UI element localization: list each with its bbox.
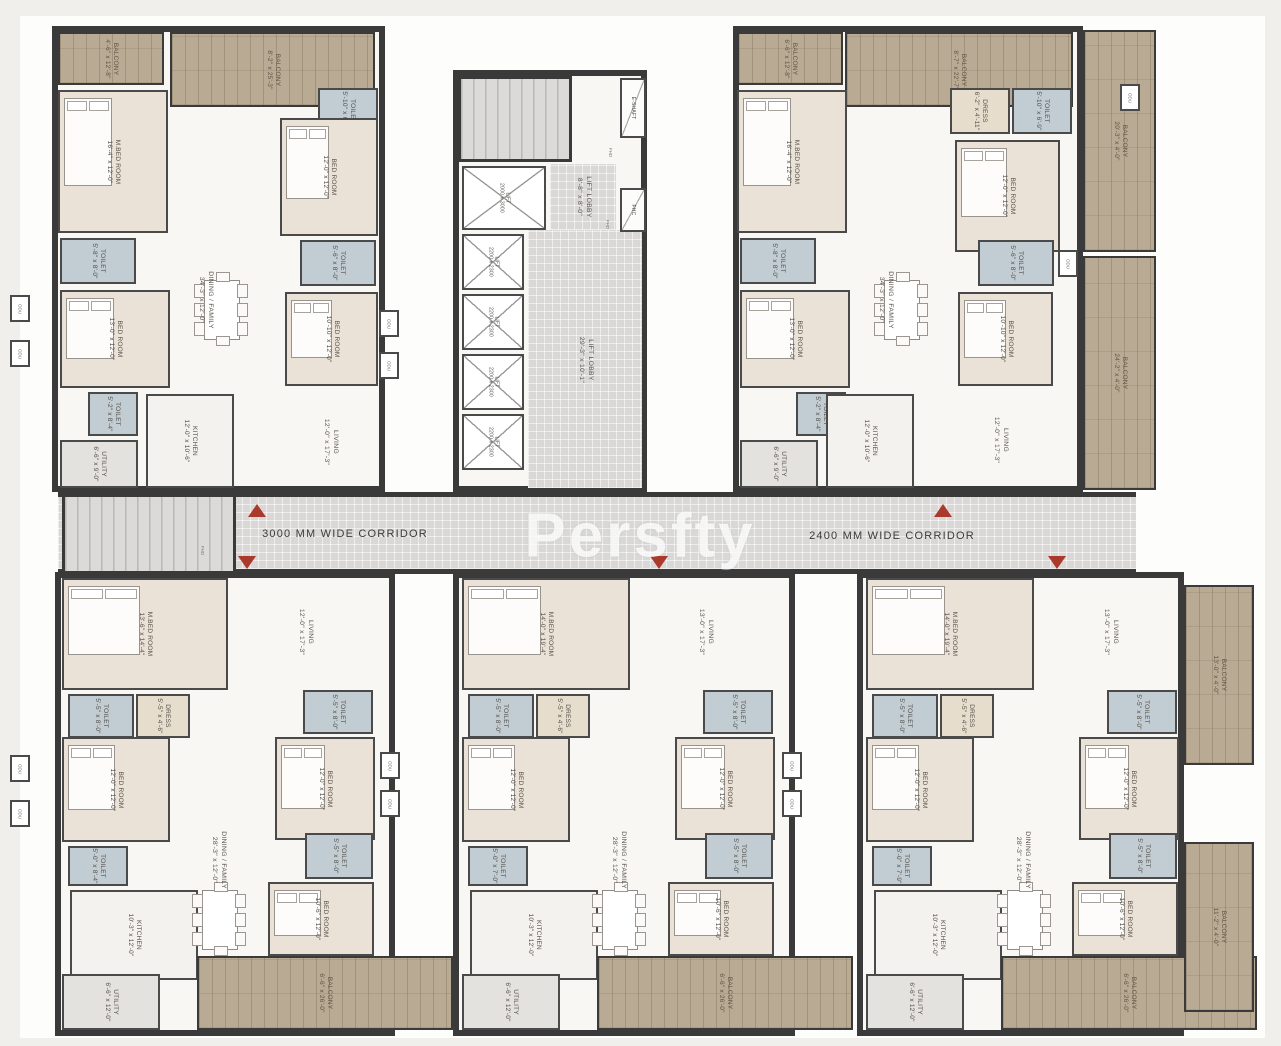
room-dim: 10'-3" x 12'-0" <box>930 914 938 957</box>
room-name: DINING / FAMILY <box>885 271 894 329</box>
room-name: UTILITY <box>511 982 519 1021</box>
room-dim: 5'-6" x 8'-0" <box>1008 245 1016 280</box>
room-label: M.BED ROOM13'-6" x 14'-4" <box>137 612 153 657</box>
room-bed-room: BED ROOM10'-6" x 12'-0" <box>668 882 774 956</box>
room-label: FHC <box>630 205 636 216</box>
room-dress: DRESS6'-2" x 4'-11" <box>950 88 1010 134</box>
room-dim: 34'-3" x 12'-0" <box>876 271 885 329</box>
room-toilet: TOILET5'-6" x 8'-0" <box>300 240 376 286</box>
room-dim: 8'-2" x 25'-3" <box>264 50 272 89</box>
room-toilet: TOILET5'-0" x 7'-9" <box>872 846 932 886</box>
room-dim: 2200 x 2300 <box>487 367 493 397</box>
room-m-bed-room: M.BED ROOM14'-0" x 19'-4" <box>462 578 630 690</box>
room-name: TOILET <box>778 243 786 278</box>
room-dim: 6'-6" x 26'-0" <box>1121 973 1129 1012</box>
room-label: UTILITY6'-6" x 12'-0" <box>503 982 519 1021</box>
odu-label: ODU <box>387 319 392 329</box>
room-label: E-SHAFT <box>630 97 636 120</box>
room-label: BALCONY4'-6" x 12'-8" <box>103 39 119 78</box>
room-dim: 10'-3" x 12'-0" <box>126 914 134 957</box>
room-dim: 13'-6" x 14'-4" <box>137 612 145 657</box>
room-name: BALCONY <box>725 973 733 1012</box>
room-name: M.BED ROOM <box>546 612 554 657</box>
room-label: TOILET5'-6" x 8'-0" <box>1008 245 1024 280</box>
room-lift: LIFT2200 x 2300 <box>462 354 524 410</box>
room-label: DRESS6'-2" x 4'-11" <box>972 92 988 131</box>
room-label: BED ROOM13'-0" x 12'-0" <box>787 318 803 361</box>
entry-marker-up <box>934 504 952 517</box>
room-toilet: TOILET5'-8" x 8'-0" <box>740 238 816 284</box>
room-name: BALCONY <box>790 39 798 78</box>
room-dim: 2200 x 2300 <box>487 307 493 337</box>
odu-label: ODU <box>18 764 23 774</box>
room-toilet: TOILET5'-5" x 8'-0" <box>1109 833 1177 879</box>
room-balcony: BALCONY4'-6" x 12'-8" <box>58 32 164 85</box>
room-label: KITCHEN12'-0" x 10'-6" <box>862 420 878 463</box>
room-dim: 2200 x 2300 <box>487 427 493 457</box>
entry-marker-up <box>248 504 266 517</box>
room-utility: UTILITY6'-6" x 9'-0" <box>60 440 138 488</box>
room-name: M.BED ROOM <box>792 139 800 184</box>
room-dim: 13'-0" x 4'-0" <box>1211 655 1219 694</box>
room-dim: 5'-8" x 8'-0" <box>90 243 98 278</box>
room-dim: 10'-6" x 12'-0" <box>313 898 321 941</box>
room-dim: 5'-5" x 8'-0" <box>1134 694 1142 729</box>
room-label: BALCONY6'-6" x 26'-0" <box>317 973 333 1012</box>
room-dim: 6'-6" x 9'-0" <box>771 446 779 481</box>
room-dim: 12'-0" x 12'-0" <box>108 768 116 811</box>
room-name: DINING / FAMILY <box>218 831 227 889</box>
room-name: FHC <box>630 205 636 216</box>
room-name: LIVING <box>330 419 339 465</box>
room-dim: 6'-6" x 12'-0" <box>503 982 511 1021</box>
room-bed-room: BED ROOM10'-10" x 12'-0" <box>285 292 378 386</box>
room-dim: 12'-0" x 17'-3" <box>991 417 1000 463</box>
room-label: BALCONY13'-0" x 4'-0" <box>1211 655 1227 694</box>
fhd-label: FHD <box>608 148 613 157</box>
room-bed-room: BED ROOM12'-0" x 12'-0" <box>280 118 378 236</box>
odu-label: ODU <box>387 361 392 371</box>
room-dim: 5'-10" x 6'-9" <box>1034 91 1042 130</box>
room-name: UTILITY <box>779 446 787 481</box>
room-dim: 5'-5" x 8'-0" <box>1135 838 1143 873</box>
room-label: TOILET5'-0" x 7'-9" <box>894 848 910 883</box>
room-label: BED ROOM10'-10" x 12'-0" <box>997 316 1013 363</box>
odu-box: ODU <box>379 310 399 337</box>
room-dim: 13'-0" x 12'-0" <box>107 318 115 361</box>
room-name: BALCONY <box>1120 121 1128 160</box>
room-toilet: TOILET5'-5" x 8'-0" <box>468 694 534 738</box>
room-name: LIVING <box>1000 417 1009 463</box>
room-name: TOILET <box>98 243 106 278</box>
room-dim: 5'-5" x 4'-6" <box>555 698 563 733</box>
room-bed-room: BED ROOM12'-0" x 12'-0" <box>1079 737 1179 840</box>
room-dim: 5'-5" x 8'-0" <box>330 694 338 729</box>
room-dim: 13'-0" x 17'-3" <box>1101 609 1110 655</box>
room-name: BED ROOM <box>1006 316 1014 363</box>
room-name: DRESS <box>967 698 975 733</box>
room-dim: 12'-0" x 12'-0" <box>999 175 1007 218</box>
room-name: BALCONY <box>1219 908 1227 947</box>
room-name: BED ROOM <box>321 898 329 941</box>
room-name: TOILET <box>739 838 747 873</box>
room-m-bed-room: M.BED ROOM14'-0" x 19'-4" <box>866 578 1034 690</box>
room-dim: 5'-5" x 4'-6" <box>155 698 163 733</box>
odu-box: ODU <box>782 790 802 817</box>
room-label: BED ROOM12'-0" x 12'-0" <box>999 175 1015 218</box>
room-name: KITCHEN <box>870 420 878 463</box>
room-name: KITCHEN <box>190 420 198 463</box>
room-label: TOILET5'-5" x 8'-0" <box>330 694 346 729</box>
room-label: KITCHEN10'-3" x 12'-0" <box>526 914 542 957</box>
room-name: BED ROOM <box>1125 898 1133 941</box>
room-toilet: TOILET5'-5" x 8'-0" <box>703 690 773 734</box>
room-dim: 5'-5" x 8'-0" <box>730 694 738 729</box>
room-label: BED ROOM12'-0" x 12'-0" <box>108 768 124 811</box>
room-dim: 6'-6" x 9'-0" <box>91 446 99 481</box>
room-label: BED ROOM12'-0" x 12'-0" <box>321 156 337 199</box>
room-dim: 12'-0" x 17'-3" <box>321 419 330 465</box>
room-dim: 5'-5" x 8'-0" <box>897 698 905 733</box>
room-name: BED ROOM <box>325 767 333 810</box>
room-dim: 6'-6" x 12'-8" <box>782 39 790 78</box>
room-label-living: LIVING12'-0" x 17'-3" <box>296 609 314 655</box>
room-label: M.BED ROOM14'-0" x 19'-4" <box>538 612 554 657</box>
room-name: M.BED ROOM <box>145 612 153 657</box>
room-dim: 12'-0" x 12'-0" <box>508 768 516 811</box>
odu-label: ODU <box>18 349 23 359</box>
room-name: TOILET <box>113 396 121 431</box>
odu-box: ODU <box>380 752 400 779</box>
entry-marker-down <box>238 556 256 569</box>
room-name: TOILET <box>1143 838 1151 873</box>
room-balcony: BALCONY13'-0" x 4'-0" <box>1184 585 1254 765</box>
room-name: DINING / FAMILY <box>1022 831 1031 889</box>
room-bed-room: BED ROOM12'-0" x 12'-0" <box>462 737 570 842</box>
room-label-dining-family: DINING / FAMILY34'-3" x 12'-0" <box>196 271 214 329</box>
room-dim: 12'-0" x 10'-6" <box>182 420 190 463</box>
room-name: BALCONY <box>273 50 281 89</box>
room-dim: 28'-3" x 12'-0" <box>209 831 218 889</box>
room-dim: 5'-5" x 8'-0" <box>93 698 101 733</box>
dining-table-icon <box>190 882 248 956</box>
room-dim: 6'-6" x 12'-0" <box>103 982 111 1021</box>
room-name: BED ROOM <box>920 768 928 811</box>
room-name: BALCONY <box>1219 655 1227 694</box>
room-label: BALCONY8'-7" x 22'-7" <box>951 50 967 89</box>
room-utility: UTILITY6'-6" x 12'-0" <box>866 974 964 1030</box>
room-label: BED ROOM10'-6" x 12'-0" <box>1117 898 1133 941</box>
room-dim: 12'-0" x 17'-3" <box>296 609 305 655</box>
room-name: DINING / FAMILY <box>618 831 627 889</box>
room-dim: 6'-6" x 12'-0" <box>907 982 915 1021</box>
room-label: TOILET5'-5" x 8'-0" <box>1135 838 1151 873</box>
room-name: UTILITY <box>99 446 107 481</box>
room-label: TOILET5'-6" x 8'-0" <box>330 245 346 280</box>
room-dim: 10'-10" x 12'-0" <box>997 316 1005 363</box>
room-toilet: TOILET5'-5" x 8'-0" <box>872 694 938 738</box>
room-dim: 8'-7" x 22'-7" <box>951 50 959 89</box>
room-label: TOILET5'-5" x 8'-0" <box>1134 694 1150 729</box>
room-dim: 6'-2" x 4'-11" <box>972 92 980 131</box>
room-dim: 16'-4" x 12'-0" <box>105 139 113 184</box>
entry-marker-down <box>1048 556 1066 569</box>
room-label: BALCONY6'-6" x 26'-0" <box>1121 973 1137 1012</box>
room-label: UTILITY6'-6" x 9'-0" <box>771 446 787 481</box>
room-label: BED ROOM10'-6" x 12'-0" <box>313 898 329 941</box>
room-dim: 10'-6" x 12'-0" <box>1117 898 1125 941</box>
odu-label: ODU <box>790 799 795 809</box>
room-label-living: LIVING13'-0" x 17'-3" <box>696 609 714 655</box>
room-toilet: TOILET5'-5" x 8'-0" <box>705 833 773 879</box>
room-bed-room: BED ROOM12'-0" x 12'-0" <box>675 737 775 840</box>
room-label: TOILET5'-5" x 8'-0" <box>331 838 347 873</box>
odu-box: ODU <box>379 352 399 379</box>
room-dim: 34'-3" x 12'-0" <box>196 271 205 329</box>
fhd-label: FHD <box>605 220 610 229</box>
room-label: DRESS5'-5" x 4'-6" <box>155 698 171 733</box>
room-name: KITCHEN <box>134 914 142 957</box>
room-dim: 14'-0" x 19'-4" <box>538 612 546 657</box>
room-bed-room: BED ROOM12'-0" x 12'-0" <box>62 737 170 842</box>
room-dim: 12'-0" x 12'-0" <box>321 156 329 199</box>
room-label: BED ROOM12'-0" x 12'-0" <box>912 768 928 811</box>
odu-label: ODU <box>1066 259 1071 269</box>
room-bed-room: BED ROOM12'-0" x 12'-0" <box>866 737 974 842</box>
room-fhc: FHC <box>620 188 646 232</box>
room-name: BALCONY <box>1129 973 1137 1012</box>
room-e-shaft: E-SHAFT <box>620 78 646 138</box>
room-label: LIFT2200 x 2300 <box>487 367 500 397</box>
room-dim: 24'-2" x 4'-0" <box>1111 353 1119 392</box>
room-dim: 6'-6" x 26'-0" <box>717 973 725 1012</box>
room-dim: 12'-0" x 12'-0" <box>912 768 920 811</box>
room-toilet: TOILET5'-2" x 8'-4" <box>88 392 138 436</box>
room-lift: LIFT2200 x 2300 <box>462 234 524 290</box>
dining-table-icon <box>590 882 648 956</box>
room-label-living: LIVING12'-0" x 17'-3" <box>991 417 1009 463</box>
odu-label: ODU <box>388 799 393 809</box>
room-balcony: BALCONY24'-2" x 4'-0" <box>1083 256 1156 490</box>
room-m-bed-room: M.BED ROOM13'-6" x 14'-4" <box>62 578 228 690</box>
room-name: TOILET <box>498 848 506 883</box>
room-name: BED ROOM <box>721 898 729 941</box>
room-name: BED ROOM <box>115 318 123 361</box>
watermark: Persfty <box>524 501 755 572</box>
room-dim: 5'-0" x 7'-0" <box>490 848 498 883</box>
odu-box: ODU <box>10 295 30 322</box>
room-name: TOILET <box>101 698 109 733</box>
room-name: M.BED ROOM <box>950 612 958 657</box>
room-name: BED ROOM <box>329 156 337 199</box>
room-label-living: LIVING12'-0" x 17'-3" <box>321 419 339 465</box>
dining-table-icon <box>995 882 1053 956</box>
room-toilet: TOILET5'-8" x 8'-0" <box>60 238 136 284</box>
room-label: BED ROOM12'-0" x 12'-0" <box>1121 767 1137 810</box>
room-kitchen: KITCHEN10'-3" x 12'-0" <box>70 890 198 980</box>
room-name: KITCHEN <box>938 914 946 957</box>
room-label: BED ROOM13'-0" x 12'-0" <box>107 318 123 361</box>
fhd-label: FHD <box>200 546 205 555</box>
room-dim: 6'-6" x 26'-0" <box>317 973 325 1012</box>
room-label-dining-family: DINING / FAMILY28'-3" x 12'-0" <box>209 831 227 889</box>
room-dim: 5'-2" x 8'-4" <box>813 396 821 431</box>
room-name: LIFT <box>504 183 510 213</box>
room-name: BED ROOM <box>1129 767 1137 810</box>
room-toilet: TOILET5'-5" x 8'-0" <box>1107 690 1177 734</box>
room-bed-room: BED ROOM10'-6" x 12'-0" <box>268 882 374 956</box>
room-m-bed-room: M.BED ROOM16'-4" x 12'-0" <box>737 90 847 233</box>
room-kitchen: KITCHEN10'-3" x 12'-0" <box>874 890 1002 980</box>
room-dim: 12'-0" x 12'-0" <box>317 767 325 810</box>
room-name: BED ROOM <box>725 767 733 810</box>
room-label: TOILET5'-0" x 7'-0" <box>490 848 506 883</box>
room-dim: 28'-3" x 12'-0" <box>1013 831 1022 889</box>
room-dim: 12'-0" x 12'-0" <box>1121 767 1129 810</box>
room-name: BED ROOM <box>795 318 803 361</box>
room-name: LIFT <box>493 247 499 277</box>
room-label: KITCHEN10'-3" x 12'-0" <box>930 914 946 957</box>
room-name: LIFT <box>493 307 499 337</box>
room-bed-room: BED ROOM10'-6" x 12'-0" <box>1072 882 1178 956</box>
room-name: LIVING <box>1110 609 1119 655</box>
room-label: KITCHEN10'-3" x 12'-0" <box>126 914 142 957</box>
room-name: LIFT LOBBY <box>585 337 594 383</box>
room-name: LIFT <box>493 367 499 397</box>
room-label: UTILITY6'-6" x 9'-0" <box>91 446 107 481</box>
room-name: TOILET <box>338 245 346 280</box>
odu-label: ODU <box>790 761 795 771</box>
floor-plan-canvas: 3000 MM WIDE CORRIDOR 2400 MM WIDE CORRI… <box>0 0 1281 1046</box>
room-dim: 2200 x 2300 <box>487 247 493 277</box>
room-kitchen: KITCHEN12'-0" x 10'-6" <box>826 394 914 488</box>
room-toilet: TOILET5'-5" x 8'-0" <box>305 833 373 879</box>
room-bed-room: BED ROOM13'-0" x 12'-0" <box>740 290 850 388</box>
room-label: BALCONY6'-6" x 26'-0" <box>717 973 733 1012</box>
room-label: UTILITY6'-6" x 12'-0" <box>103 982 119 1021</box>
room-dim: 10'-10" x 12'-0" <box>323 316 331 363</box>
room-name: TOILET <box>738 694 746 729</box>
room-name: LIVING <box>305 609 314 655</box>
room-toilet: TOILET5'-0" x 8'-4" <box>68 846 128 886</box>
room-utility: UTILITY6'-6" x 9'-0" <box>740 440 818 488</box>
room-dim: 12'-0" x 10'-6" <box>862 420 870 463</box>
odu-box: ODU <box>1058 250 1078 277</box>
odu-box: ODU <box>10 755 30 782</box>
room-label-dining-family: DINING / FAMILY28'-3" x 12'-0" <box>1013 831 1031 889</box>
room-name: TOILET <box>339 838 347 873</box>
room-label: TOILET5'-0" x 8'-4" <box>90 848 106 883</box>
corridor-width-label-right: 2400 MM WIDE CORRIDOR <box>809 530 975 542</box>
room-name: UTILITY <box>111 982 119 1021</box>
room-dim: 5'-5" x 4'-6" <box>959 698 967 733</box>
room-label: LIFT2200 x 2300 <box>487 247 500 277</box>
room-balcony: BALCONY6'-6" x 26'-0" <box>197 956 453 1030</box>
odu-label: ODU <box>18 809 23 819</box>
odu-box: ODU <box>10 800 30 827</box>
room-label: TOILET5'-2" x 8'-4" <box>105 396 121 431</box>
room-dim: 5'-5" x 8'-0" <box>493 698 501 733</box>
room-name: BED ROOM <box>332 316 340 363</box>
room-utility: UTILITY6'-6" x 12'-0" <box>462 974 560 1030</box>
room-label-dining-family: DINING / FAMILY34'-3" x 12'-0" <box>876 271 894 329</box>
odu-label: ODU <box>1128 93 1133 103</box>
room-name: LIFT LOBBY <box>583 176 592 217</box>
room-label: BED ROOM10'-10" x 12'-0" <box>323 316 339 363</box>
room-bed-room: BED ROOM12'-0" x 12'-0" <box>955 140 1060 252</box>
room-label: TOILET5'-5" x 8'-0" <box>493 698 509 733</box>
room-kitchen: KITCHEN12'-0" x 10'-6" <box>146 394 234 488</box>
room-dim: 5'-0" x 8'-4" <box>90 848 98 883</box>
room-label: TOILET5'-10" x 6'-9" <box>1034 91 1050 130</box>
room-balcony: BALCONY11'-2" x 4'-0" <box>1184 842 1254 1012</box>
room-name: BED ROOM <box>1008 175 1016 218</box>
room-lift: LIFT2000 x 3000 <box>462 166 546 230</box>
room-name: BALCONY <box>325 973 333 1012</box>
room-dim: 5'-0" x 7'-9" <box>894 848 902 883</box>
room-m-bed-room: M.BED ROOM16'-4" x 12'-0" <box>58 90 168 233</box>
room-label: BED ROOM12'-0" x 12'-0" <box>717 767 733 810</box>
room-dim: 8'-8" x 8'-0" <box>574 176 583 217</box>
bed-icon <box>468 586 541 655</box>
room-name: BALCONY <box>959 50 967 89</box>
room-bed-room: BED ROOM10'-10" x 12'-0" <box>958 292 1053 386</box>
room-name: TOILET <box>1016 245 1024 280</box>
room-name: TOILET <box>1042 91 1050 130</box>
room-balcony: BALCONY6'-6" x 12'-8" <box>737 32 843 85</box>
corridor-width-label-left: 3000 MM WIDE CORRIDOR <box>262 528 428 540</box>
room-dim: 14'-0" x 19'-4" <box>942 612 950 657</box>
room-lift: LIFT2200 x 2300 <box>462 414 524 470</box>
room-label-dining-family: DINING / FAMILY28'-3" x 12'-0" <box>609 831 627 889</box>
room-label: LIFT2200 x 2300 <box>487 427 500 457</box>
room-dim: 28'-3" x 12'-0" <box>609 831 618 889</box>
room-dim: 5'-5" x 8'-0" <box>331 838 339 873</box>
room-toilet: TOILET5'-5" x 8'-0" <box>303 690 373 734</box>
room-name: TOILET <box>1142 694 1150 729</box>
room-dim: 20'-3" x 4'-0" <box>1111 121 1119 160</box>
room-label: TOILET5'-8" x 8'-0" <box>770 243 786 278</box>
room-toilet: TOILET5'-5" x 8'-0" <box>68 694 134 738</box>
room-label-lift-lobby: LIFT LOBBY29'-3" x 10'-1" <box>576 337 594 383</box>
room-label: UTILITY6'-6" x 12'-0" <box>907 982 923 1021</box>
odu-box: ODU <box>782 752 802 779</box>
room-label: TOILET5'-5" x 8'-0" <box>730 694 746 729</box>
room-dim: 2000 x 3000 <box>498 183 504 213</box>
room-name: M.BED ROOM <box>113 139 121 184</box>
room-label: DRESS5'-5" x 4'-6" <box>959 698 975 733</box>
bed-icon <box>68 586 140 655</box>
room-bed-room: BED ROOM12'-0" x 12'-0" <box>275 737 375 840</box>
room-dim: 13'-0" x 12'-0" <box>787 318 795 361</box>
room-name: DRESS <box>563 698 571 733</box>
room-dim: 4'-6" x 12'-8" <box>103 39 111 78</box>
bed-icon <box>872 586 945 655</box>
room-bed-room: BED ROOM13'-0" x 12'-0" <box>60 290 170 388</box>
room-dim: 10'-3" x 12'-0" <box>526 914 534 957</box>
room-name: BED ROOM <box>516 768 524 811</box>
room-label: BALCONY6'-6" x 12'-8" <box>782 39 798 78</box>
room-name: TOILET <box>98 848 106 883</box>
room-name: TOILET <box>905 698 913 733</box>
room-label: TOILET5'-5" x 8'-0" <box>897 698 913 733</box>
odu-box: ODU <box>10 340 30 367</box>
stair-west <box>62 494 236 574</box>
room-label: BED ROOM12'-0" x 12'-0" <box>508 768 524 811</box>
room-utility: UTILITY6'-6" x 12'-0" <box>62 974 160 1030</box>
odu-label: ODU <box>388 761 393 771</box>
room-name: DRESS <box>980 92 988 131</box>
